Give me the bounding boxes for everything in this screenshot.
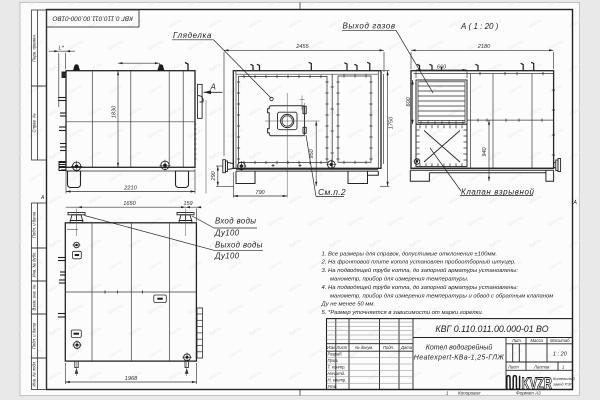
svg-text:Масштаб: Масштаб <box>550 338 570 343</box>
svg-text:1968: 1968 <box>125 376 138 382</box>
svg-text:5. *Размер уточняется в зависи: 5. *Размер уточняется в зависимости от м… <box>322 310 484 316</box>
svg-text:Гляделка: Гляделка <box>173 31 212 40</box>
svg-text:Листов: Листов <box>533 365 550 370</box>
svg-text:Heatexpert-КВа-1,25-ГЛЖ: Heatexpert-КВа-1,25-ГЛЖ <box>414 355 505 362</box>
svg-text:Перв. примен.: Перв. примен. <box>32 34 37 62</box>
svg-text:940: 940 <box>482 146 488 156</box>
svg-text:L*: L* <box>59 46 65 52</box>
svg-text:1830: 1830 <box>112 105 118 118</box>
svg-text:1 : 20: 1 : 20 <box>553 352 568 358</box>
svg-text:Подп. и дата: Подп. и дата <box>32 211 37 238</box>
svg-text:159: 159 <box>183 201 192 207</box>
svg-text:2210: 2210 <box>123 186 137 192</box>
svg-text:Выход газов: Выход газов <box>343 22 396 31</box>
svg-text:600: 600 <box>406 96 412 106</box>
svg-text:950: 950 <box>309 148 315 158</box>
svg-text:Ду100: Ду100 <box>214 229 240 238</box>
svg-text:2. На фронтовой плите котла ус: 2. На фронтовой плите котла установлен п… <box>321 259 516 266</box>
svg-text:КВГ 0.110.011.00.000-01 ВО: КВГ 0.110.011.00.000-01 ВО <box>435 324 548 334</box>
svg-text:Взам. инв. №: Взам. инв. № <box>32 284 37 310</box>
svg-text:А: А <box>573 200 578 206</box>
svg-text:Справ. №: Справ. № <box>32 113 37 132</box>
svg-text:Лит.: Лит. <box>511 338 522 343</box>
svg-text:КВГ 0.110.011.00.000-01ВО: КВГ 0.110.011.00.000-01ВО <box>52 14 132 21</box>
svg-text:3. На подводящей трубе котла,: 3. На подводящей трубе котла, до запорно… <box>322 267 519 274</box>
svg-text:А: А <box>210 83 216 92</box>
svg-text:1750: 1750 <box>389 116 395 129</box>
svg-text:660: 660 <box>437 65 447 71</box>
svg-text:790: 790 <box>255 190 265 196</box>
svg-text:2180: 2180 <box>477 44 491 50</box>
svg-text:манометр, прибор для измерения: манометр, прибор для измерения температу… <box>330 277 468 283</box>
svg-text:290: 290 <box>211 170 217 181</box>
svg-text:завод РЭП: завод РЭП <box>552 382 573 387</box>
svg-text:Клапан взрывной: Клапан взрывной <box>461 187 535 196</box>
svg-text:Копировал: Копировал <box>458 391 481 396</box>
svg-text:Лист: Лист <box>336 345 348 350</box>
svg-text:1. Все размеры для справок, до: 1. Все размеры для справок, допустимые о… <box>322 251 498 257</box>
svg-text:Ду100: Ду100 <box>214 252 240 261</box>
svg-text:Котельный: Котельный <box>553 376 576 381</box>
svg-text:Н. контр.: Н. контр. <box>328 378 347 383</box>
svg-text:1650: 1650 <box>123 201 136 207</box>
svg-text:№ докум.: № докум. <box>355 345 373 350</box>
svg-text:Инв. № дубл.: Инв. № дубл. <box>32 252 37 278</box>
svg-text:манометр, прибор для измерения: манометр, прибор для измерения температу… <box>330 293 553 299</box>
svg-text:См.п.2: См.п.2 <box>318 187 346 197</box>
svg-text:1: 1 <box>562 365 564 370</box>
svg-text:А: А <box>40 195 45 201</box>
svg-text:Т. контр.: Т. контр. <box>328 365 346 370</box>
svg-text:Масса: Масса <box>531 338 544 343</box>
svg-text:Изм: Изм <box>327 345 335 350</box>
svg-text:4. На подводящей трубе котла,: 4. На подводящей трубе котла, до запорно… <box>322 284 519 291</box>
svg-text:KVZR: KVZR <box>522 375 553 393</box>
svg-text:Вход воды: Вход воды <box>215 217 256 226</box>
svg-text:Нач.отд.: Нач.отд. <box>328 371 346 376</box>
svg-text:Подп. и дата: Подп. и дата <box>32 322 37 349</box>
svg-text:2455: 2455 <box>295 44 309 50</box>
svg-text:Выход воды: Выход воды <box>215 241 263 250</box>
svg-text:Подп.: Подп. <box>383 345 394 350</box>
svg-text:Дата: Дата <box>400 345 413 350</box>
svg-text:Утв.: Утв. <box>328 384 338 389</box>
svg-text:А ( 1 : 20 ): А ( 1 : 20 ) <box>460 22 499 31</box>
svg-text:Пров.: Пров. <box>328 358 339 363</box>
svg-text:Лист: Лист <box>507 365 519 370</box>
svg-text:Ду не менее 50 мм.: Ду не менее 50 мм. <box>321 302 376 308</box>
svg-text:Инв. № подл.: Инв. № подл. <box>32 361 37 387</box>
svg-text:Котел водогрейный: Котел водогрейный <box>426 344 493 352</box>
svg-text:Разраб.: Разраб. <box>328 352 343 357</box>
